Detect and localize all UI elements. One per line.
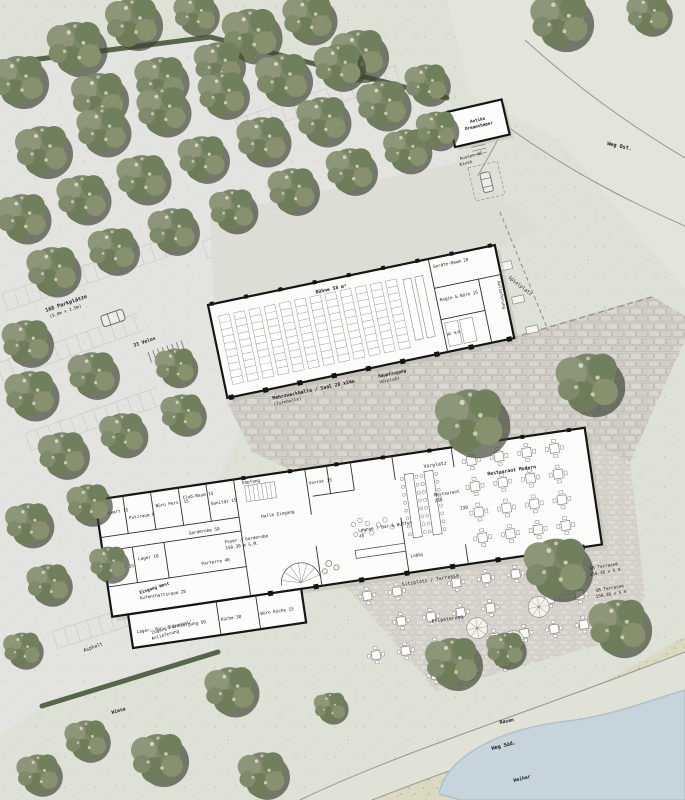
chair bbox=[408, 533, 411, 536]
structural-pier bbox=[487, 243, 492, 248]
chair bbox=[436, 480, 439, 483]
chair bbox=[422, 490, 425, 493]
structural-pier bbox=[331, 373, 337, 379]
structural-pier bbox=[241, 476, 246, 481]
chair bbox=[443, 528, 446, 531]
chair bbox=[439, 504, 442, 507]
structural-pier bbox=[244, 294, 249, 299]
restaurant-seats: 230 bbox=[434, 497, 443, 504]
chair bbox=[421, 515, 424, 518]
lounge-seat bbox=[351, 522, 356, 527]
structural-pier bbox=[313, 584, 319, 590]
site-plan-svg: Antike Dreamshaper Bühne 58 m² Geräte-Ra… bbox=[0, 0, 685, 800]
chair bbox=[442, 520, 445, 523]
structural-pier bbox=[506, 336, 512, 342]
chair bbox=[406, 517, 409, 520]
site-plan: Antike Dreamshaper Bühne 58 m² Geräte-Ra… bbox=[0, 0, 685, 800]
structural-pier bbox=[450, 564, 456, 570]
structural-pier bbox=[449, 251, 454, 256]
lounge-seat bbox=[357, 518, 362, 523]
chair bbox=[418, 499, 421, 502]
structural-pier bbox=[400, 358, 406, 364]
structural-pier bbox=[346, 273, 351, 278]
chair bbox=[435, 472, 438, 475]
chair bbox=[440, 512, 443, 515]
structural-pier bbox=[297, 380, 303, 386]
chair bbox=[428, 530, 431, 533]
structural-pier bbox=[359, 577, 365, 583]
structural-pier bbox=[209, 301, 214, 306]
chair bbox=[423, 530, 426, 533]
structural-pier bbox=[288, 469, 293, 474]
chair bbox=[423, 498, 426, 501]
structural-pier bbox=[278, 287, 283, 292]
structural-pier bbox=[228, 394, 234, 400]
structural-pier bbox=[365, 366, 371, 372]
chair bbox=[420, 507, 423, 510]
structural-pier bbox=[427, 448, 432, 453]
structural-pier bbox=[468, 344, 474, 350]
chair bbox=[401, 485, 404, 488]
chair bbox=[400, 477, 403, 480]
chair bbox=[427, 522, 430, 525]
structural-pier bbox=[334, 462, 339, 467]
chair bbox=[405, 509, 408, 512]
restaurant-count: 230 bbox=[460, 505, 469, 512]
chair bbox=[415, 475, 418, 478]
structural-pier bbox=[381, 266, 386, 271]
chair bbox=[420, 474, 423, 477]
structural-pier bbox=[495, 557, 501, 563]
chair bbox=[422, 523, 425, 526]
lounge-seat bbox=[365, 521, 370, 526]
chair bbox=[402, 493, 405, 496]
structural-pier bbox=[263, 387, 269, 393]
structural-pier bbox=[520, 435, 525, 440]
structural-pier bbox=[404, 570, 410, 576]
chair bbox=[424, 506, 427, 509]
structural-pier bbox=[268, 591, 274, 597]
chair bbox=[426, 514, 429, 517]
chair bbox=[417, 491, 420, 494]
structural-pier bbox=[312, 280, 317, 285]
chair bbox=[416, 483, 419, 486]
structural-pier bbox=[434, 351, 440, 357]
lounge-seat bbox=[383, 517, 388, 522]
lounge-seat bbox=[353, 532, 358, 537]
chair bbox=[421, 482, 424, 485]
structural-pier bbox=[567, 428, 572, 433]
structural-pier bbox=[415, 258, 420, 263]
chair bbox=[437, 488, 440, 491]
structural-pier bbox=[381, 455, 386, 460]
chair bbox=[404, 501, 407, 504]
